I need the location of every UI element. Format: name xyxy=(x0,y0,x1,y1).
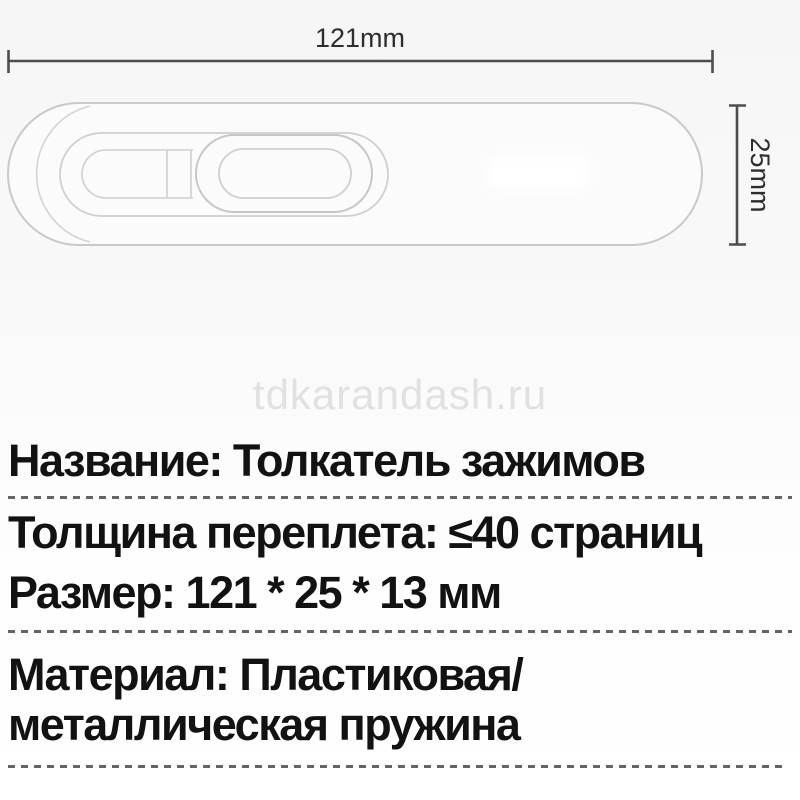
spec-size: Размер: 121 * 25 * 13 мм xyxy=(8,570,798,617)
width-dimension-label: 121mm xyxy=(315,23,405,53)
width-dimension-line xyxy=(8,50,713,73)
slider-thumb-outline xyxy=(196,135,372,212)
height-dimension-label: 25mm xyxy=(745,137,775,212)
dashed-divider xyxy=(8,630,792,633)
watermark-text: tdkarandash.ru xyxy=(0,374,800,416)
body-highlight xyxy=(487,156,589,190)
spec-material-line1: Материал: Пластиковая/ xyxy=(8,652,798,699)
spec-product-name: Название: Толкатель зажимов xyxy=(8,438,798,485)
product-drawing: 121mm xyxy=(0,0,800,430)
dashed-divider xyxy=(8,765,786,768)
spec-material-line2: металлическая пружина xyxy=(8,702,798,749)
product-infographic: 121mm xyxy=(0,0,800,800)
spec-binding-thickness: Толщина переплета: ≤40 страниц xyxy=(8,510,798,557)
dashed-divider xyxy=(8,496,792,499)
height-dimension-line xyxy=(729,105,746,245)
product-body-outline xyxy=(8,103,702,245)
